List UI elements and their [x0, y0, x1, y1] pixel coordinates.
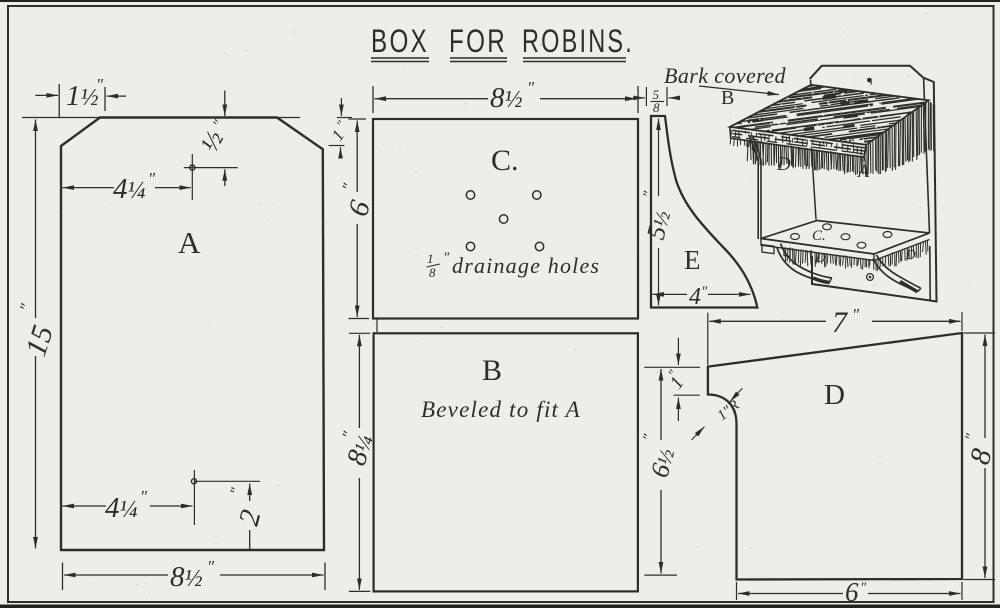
svg-text:″: ″	[701, 284, 708, 300]
svg-text:″: ″	[443, 250, 450, 266]
svg-text:D: D	[905, 248, 916, 263]
svg-text:D: D	[776, 154, 791, 175]
svg-text:ROBINS.: ROBINS.	[522, 23, 634, 59]
svg-text:6: 6	[845, 577, 859, 607]
svg-text:″: ″	[96, 75, 104, 94]
svg-text:1½: 1½	[66, 80, 99, 112]
svg-text:″: ″	[207, 557, 215, 576]
svg-text:8½: 8½	[170, 561, 203, 593]
svg-text:A: A	[857, 161, 870, 181]
svg-text:B: B	[721, 87, 734, 109]
svg-text:Bark covered: Bark covered	[664, 63, 786, 88]
svg-text:4¼: 4¼	[105, 492, 138, 524]
svg-text:8: 8	[429, 265, 436, 280]
svg-text:″: ″	[852, 305, 860, 324]
svg-text:C.: C.	[491, 144, 519, 177]
svg-text:1: 1	[427, 251, 434, 266]
svg-text:D: D	[824, 379, 845, 411]
svg-text:7: 7	[832, 306, 849, 339]
svg-text:E: E	[684, 245, 701, 275]
svg-text:A: A	[178, 225, 201, 260]
svg-text:4¼: 4¼	[113, 173, 146, 205]
svg-text:4: 4	[689, 284, 701, 310]
svg-text:Beveled to fit A: Beveled to fit A	[421, 397, 581, 422]
svg-text:″: ″	[148, 169, 156, 188]
svg-text:″: ″	[527, 78, 535, 97]
svg-text:drainage holes: drainage holes	[452, 253, 600, 278]
svg-text:C.: C.	[812, 228, 826, 244]
svg-text:8: 8	[653, 100, 660, 115]
svg-text:FOR: FOR	[449, 23, 507, 59]
svg-text:BOX: BOX	[371, 23, 429, 59]
svg-text:″: ″	[140, 487, 148, 506]
svg-text:″: ″	[860, 580, 867, 596]
svg-text:D: D	[815, 251, 826, 266]
svg-text:8½: 8½	[490, 82, 523, 114]
svg-text:B: B	[482, 354, 502, 387]
